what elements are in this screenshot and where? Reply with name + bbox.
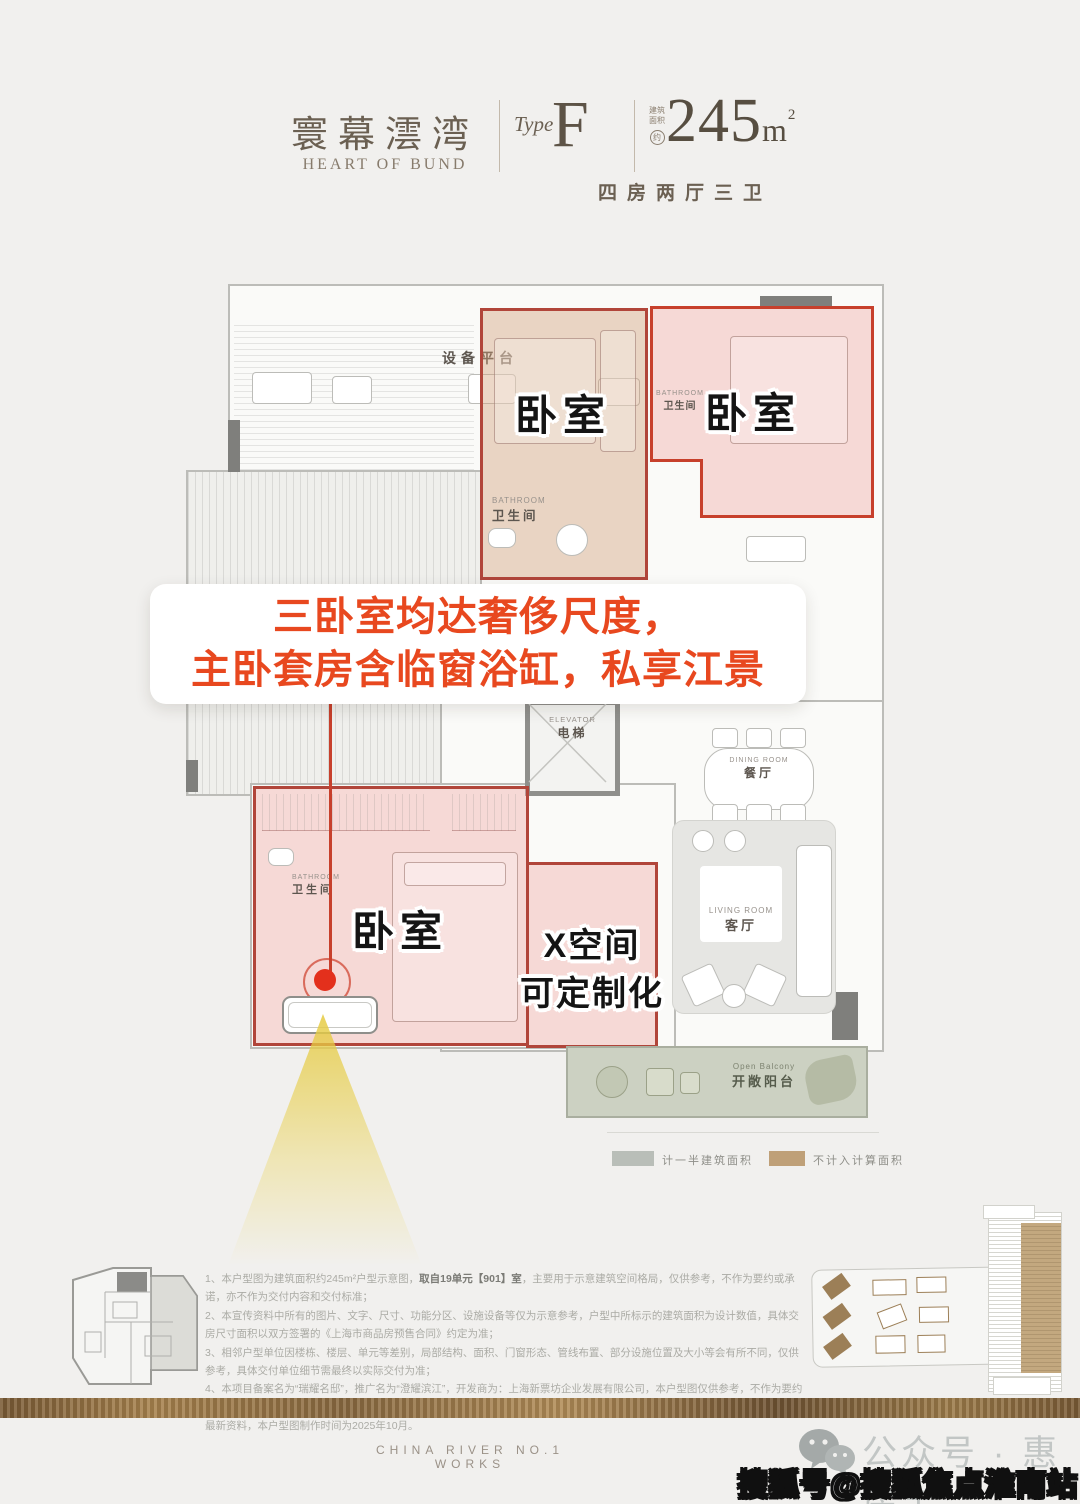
- area-note-line2: 面积: [649, 116, 665, 125]
- header-divider-right: [634, 100, 635, 172]
- poster-canvas: 寰幕澐湾 HEART OF BUND Type F 建筑 面积 约 245m2 …: [0, 0, 1080, 1504]
- bedroom2-border-bottom: [700, 515, 874, 518]
- bathtub-icon: [282, 996, 378, 1034]
- area-unit: m: [762, 112, 788, 148]
- bathroom1-label-cn: 卫生间: [492, 505, 582, 524]
- xspace-label-line1: X空间: [512, 918, 672, 967]
- area-note-approx: 约: [650, 130, 665, 145]
- area-superscript: 2: [788, 107, 797, 123]
- area-value: 245m2: [666, 90, 796, 152]
- siteplan-building-icon: [916, 1276, 946, 1293]
- living-label-cn: 客厅: [700, 915, 782, 934]
- balcony-chair-icon: [646, 1068, 674, 1096]
- tower-elevation: [988, 1212, 1062, 1392]
- tower-elevation-unit-shade: [1021, 1223, 1061, 1373]
- coffee-table-icon: LIVING ROOM 客厅: [700, 866, 782, 942]
- dining-table-icon: DINING ROOM 餐厅: [704, 748, 814, 810]
- side-table-icon: [692, 830, 714, 852]
- gold-band: [0, 1398, 1080, 1418]
- tower-elevation-base: [993, 1377, 1051, 1395]
- legend-divider: [607, 1132, 879, 1133]
- stove-icon: [746, 536, 806, 562]
- highlight-dot: [314, 969, 336, 991]
- ac-unit-icon: [252, 372, 312, 404]
- balcony-zone: Open Balcony 开敞阳台: [566, 1046, 868, 1118]
- living-label-en: LIVING ROOM: [700, 906, 782, 915]
- side-table-icon: [724, 830, 746, 852]
- bedroom2-border-step-h: [650, 459, 702, 462]
- sofa-icon: [796, 845, 832, 997]
- siteplan-building-icon: [872, 1279, 906, 1296]
- stool-icon: [722, 984, 746, 1008]
- tower-elevation-roof: [983, 1205, 1035, 1219]
- dining-label-cn: 餐厅: [705, 764, 813, 781]
- bedroom2-border-left: [650, 306, 653, 462]
- type-label: Type: [514, 112, 553, 137]
- legend-swatch-half-area: [612, 1151, 654, 1166]
- area-note-line1: 建筑: [649, 106, 665, 115]
- toilet-icon: [488, 528, 516, 548]
- xspace-label-line2: 可定制化: [497, 966, 687, 1015]
- siteplan-building-icon: [822, 1273, 851, 1300]
- type-value: F: [552, 92, 589, 158]
- bathroom1-label: BATHROOM 卫生间: [492, 496, 582, 524]
- siteplan-building-icon: [875, 1335, 905, 1354]
- master-bathroom-label-en: BATHROOM: [292, 874, 362, 881]
- layout-description: 四房两厅三卫: [540, 178, 830, 205]
- callout-leader-line: [329, 700, 332, 978]
- siteplan-building-icon: [823, 1333, 852, 1360]
- siteplan-building-icon: [877, 1303, 908, 1329]
- master-bathroom-label: BATHROOM 卫生间: [292, 874, 362, 897]
- elevator-label: ELEVATOR 电梯: [530, 715, 615, 741]
- toilet-icon: [268, 848, 294, 866]
- dining-label-en: DINING ROOM: [705, 757, 813, 764]
- siteplan-building-icon: [823, 1303, 852, 1330]
- bedroom2-border-right: [871, 306, 874, 518]
- master-pillow-icon: [404, 862, 506, 886]
- dining-chair-icon: [780, 728, 806, 748]
- dining-chair-icon: [712, 728, 738, 748]
- disclaimer-line3: 3、相邻户型单位因楼栋、楼层、单元等差别，局部结构、面积、门窗形态、管线布置、部…: [205, 1344, 805, 1381]
- disclaimer-line1: 1、本户型图为建筑面积约245m²户型示意图，取自19单元【901】室，主要用于…: [205, 1270, 805, 1307]
- bedroom2-border-step-v: [700, 459, 703, 517]
- master-bedroom-label: 卧室: [322, 898, 478, 959]
- master-wardrobe-hatch: [452, 794, 516, 831]
- master-wardrobe-hatch: [262, 794, 430, 831]
- brand-name-cn: 寰幕澐湾: [282, 104, 488, 158]
- callout-line1: 三卧室均达奢侈尺度，: [150, 591, 806, 644]
- living-label: LIVING ROOM 客厅: [700, 866, 782, 934]
- disclaimer-line1-bold: 取自19单元【901】室: [419, 1273, 522, 1285]
- legend-swatch-excluded: [769, 1151, 805, 1166]
- ac-unit-icon: [332, 376, 372, 404]
- wall-block: [228, 420, 240, 472]
- bedroom1-label: 卧室: [485, 382, 641, 443]
- legend-label-excluded: 不计入计算面积: [813, 1152, 904, 1168]
- elevator-label-cn: 电梯: [530, 724, 615, 741]
- brand-name-en: HEART OF BUND: [278, 156, 492, 174]
- bedroom2-label: 卧室: [675, 380, 831, 441]
- footer-works-text: CHINA RIVER NO.1 WORKS: [340, 1443, 600, 1471]
- callout-box: 三卧室均达奢侈尺度， 主卧套房含临窗浴缸，私享江景: [150, 584, 806, 704]
- siteplan-building-icon: [919, 1306, 949, 1323]
- callout-line2: 主卧套房含临窗浴缸，私享江景: [150, 644, 806, 697]
- balcony-chair-icon: [680, 1072, 700, 1094]
- dining-chair-icon: [746, 728, 772, 748]
- master-bathroom-label-cn: 卫生间: [292, 881, 362, 897]
- elevator-cross-icon: [525, 700, 610, 786]
- bathroom1-label-en: BATHROOM: [492, 496, 582, 505]
- legend-label-half-area: 计一半建筑面积: [662, 1152, 753, 1168]
- light-cone: [224, 1014, 426, 1276]
- sink-icon: [556, 524, 588, 556]
- keyplan-thumbnail: [55, 1262, 205, 1400]
- elevator-label-en: ELEVATOR: [530, 715, 615, 724]
- balcony-wheel-icon: [596, 1066, 628, 1098]
- sohu-watermark: 搜狐号@搜狐焦点淮南站: [700, 1460, 1078, 1504]
- disclaimer-line2: 2、本宣传资料中所有的图片、文字、尺寸、功能分区、设施设备等仅为示意参考，户型中…: [205, 1307, 805, 1344]
- siteplan-building-icon: [917, 1334, 945, 1352]
- header-divider-left: [499, 100, 500, 172]
- elevator-box: ELEVATOR 电梯: [525, 700, 620, 796]
- bedroom2-border-top: [650, 306, 874, 309]
- wall-block: [186, 760, 198, 792]
